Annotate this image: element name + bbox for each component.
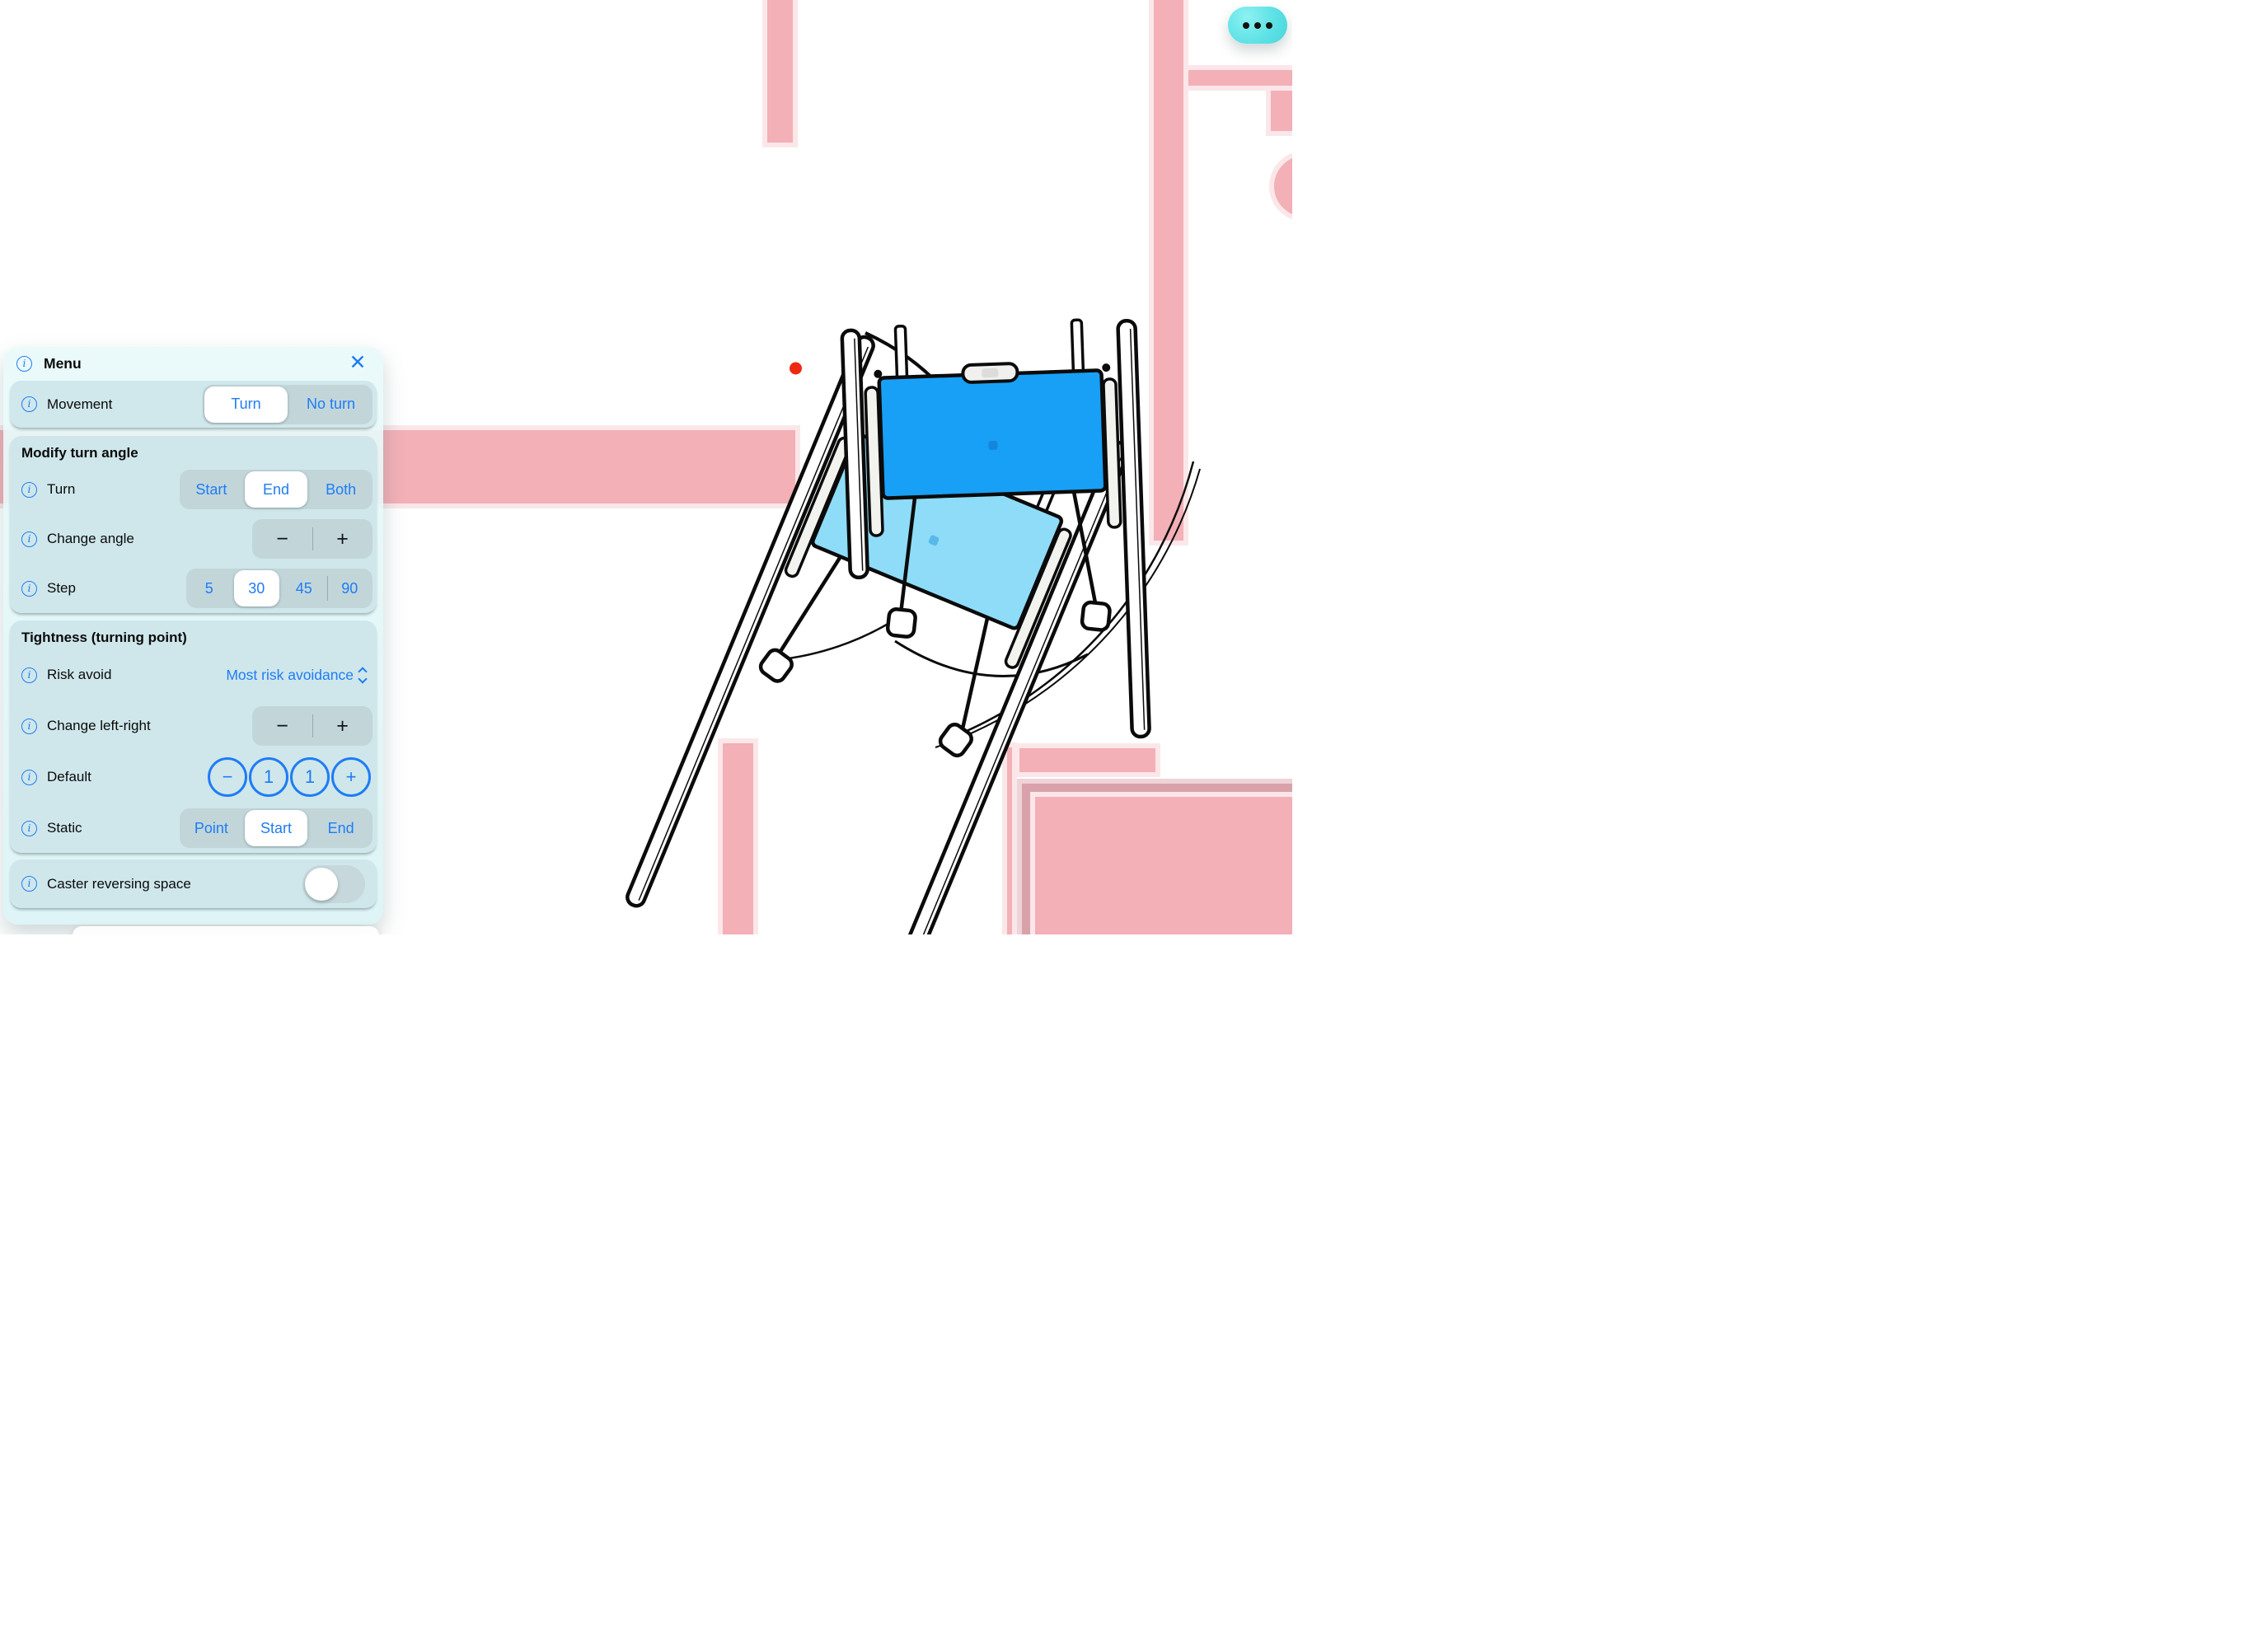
change-angle-stepper: − + (252, 519, 373, 559)
turn-row: i Turn Start End Both (21, 465, 373, 514)
default-row: i Default − 1 1 + (21, 752, 373, 803)
change-angle-label: Change angle (47, 531, 134, 547)
page-title: Menu (44, 355, 82, 372)
caster-card: i Caster reversing space (10, 859, 377, 908)
static-row: i Static Point Start End (21, 803, 373, 854)
info-icon[interactable]: i (21, 667, 37, 683)
minus-button[interactable]: − (252, 527, 312, 551)
turn-label: Turn (47, 481, 75, 498)
risk-avoid-picker[interactable]: Most risk avoidance (226, 667, 366, 684)
plus-button[interactable]: + (312, 527, 373, 551)
menu-panel: i Menu ✕ i Movement Turn No turn Modify … (3, 347, 383, 925)
turn-segmented-control: Start End Both (180, 470, 373, 509)
more-options-button[interactable] (1228, 7, 1287, 44)
app-screen: i Menu ✕ i Movement Turn No turn Modify … (0, 0, 1292, 934)
info-icon[interactable]: i (21, 532, 37, 547)
static-label: Static (47, 820, 82, 836)
wall (765, 0, 795, 145)
movement-segmented-control: Turn No turn (203, 385, 373, 424)
caster-left (757, 647, 794, 684)
tightness-card: Tightness (turning point) i Risk avoid M… (10, 620, 377, 853)
change-angle-row: i Change angle − + (21, 514, 373, 564)
info-icon[interactable]: i (21, 396, 37, 412)
change-left-right-stepper: − + (252, 706, 373, 746)
risk-avoid-value: Most risk avoidance (226, 667, 354, 684)
risk-avoid-label: Risk avoid (47, 667, 111, 683)
wall (1268, 88, 1292, 133)
step-option-30[interactable]: 30 (234, 570, 280, 606)
wall (1017, 746, 1158, 775)
caster-right (938, 722, 975, 759)
rear-wheel-right (1118, 321, 1150, 737)
caster-toggle[interactable] (302, 865, 365, 903)
risk-avoid-row: i Risk avoid Most risk avoidance (21, 649, 373, 700)
next-panel-peek (73, 926, 379, 934)
modify-turn-angle-title: Modify turn angle (21, 442, 373, 465)
turning-point-marker[interactable] (790, 363, 802, 375)
info-icon[interactable]: i (21, 876, 37, 892)
change-left-right-row: i Change left-right − + (21, 700, 373, 752)
default-value-right[interactable]: 1 (290, 757, 330, 797)
modify-turn-angle-card: Modify turn angle i Turn Start End Both … (10, 436, 377, 613)
default-label: Default (47, 769, 91, 785)
change-left-right-label: Change left-right (47, 718, 151, 734)
step-row: i Step 5 30 45 90 (21, 564, 373, 613)
info-icon[interactable]: i (21, 821, 37, 836)
step-option-90[interactable]: 90 (327, 569, 373, 608)
movement-option-turn[interactable]: Turn (204, 386, 288, 423)
ellipsis-icon (1254, 22, 1261, 29)
footrest-bar-right (944, 615, 1006, 728)
step-option-5[interactable]: 5 (186, 569, 232, 608)
default-controls: − 1 1 + (208, 757, 371, 797)
close-icon[interactable]: ✕ (344, 349, 372, 377)
info-icon[interactable]: i (21, 482, 37, 498)
caster-left (887, 608, 916, 637)
wall (1186, 68, 1292, 88)
movement-option-no-turn[interactable]: No turn (289, 385, 373, 424)
info-icon[interactable]: i (21, 770, 37, 785)
chevron-up-down-icon (359, 668, 366, 682)
turn-option-end[interactable]: End (245, 471, 308, 508)
static-segmented-control: Point Start End (180, 808, 373, 848)
toggle-knob (305, 868, 338, 901)
tightness-title: Tightness (turning point) (21, 626, 373, 649)
plus-button[interactable]: + (312, 714, 373, 738)
static-option-point[interactable]: Point (180, 808, 243, 848)
wall (720, 741, 756, 934)
default-minus-button[interactable]: − (208, 757, 247, 797)
wall (1272, 153, 1292, 219)
ellipsis-icon (1243, 22, 1249, 29)
default-value-left[interactable]: 1 (249, 757, 288, 797)
seat-center-dot (988, 441, 997, 450)
info-icon[interactable]: i (16, 356, 32, 372)
wall (1151, 0, 1186, 543)
minus-button[interactable]: − (252, 714, 312, 738)
movement-card: i Movement Turn No turn (10, 381, 377, 428)
step-segmented-control: 5 30 45 90 (186, 569, 373, 608)
caster-right (1081, 602, 1110, 630)
default-plus-button[interactable]: + (331, 757, 371, 797)
info-icon[interactable]: i (21, 719, 37, 734)
caster-label: Caster reversing space (47, 876, 191, 892)
seat-end (879, 370, 1106, 498)
wall (1033, 794, 1292, 934)
movement-label: Movement (47, 396, 112, 413)
turn-option-start[interactable]: Start (180, 470, 243, 509)
step-label: Step (47, 580, 76, 597)
wall (1005, 745, 1015, 934)
menu-header: i Menu ✕ (3, 347, 383, 381)
static-option-start[interactable]: Start (245, 810, 308, 846)
turn-option-both[interactable]: Both (309, 470, 373, 509)
step-option-45[interactable]: 45 (281, 569, 327, 608)
ellipsis-icon (1266, 22, 1272, 29)
info-icon[interactable]: i (21, 581, 37, 597)
static-option-end[interactable]: End (309, 808, 373, 848)
